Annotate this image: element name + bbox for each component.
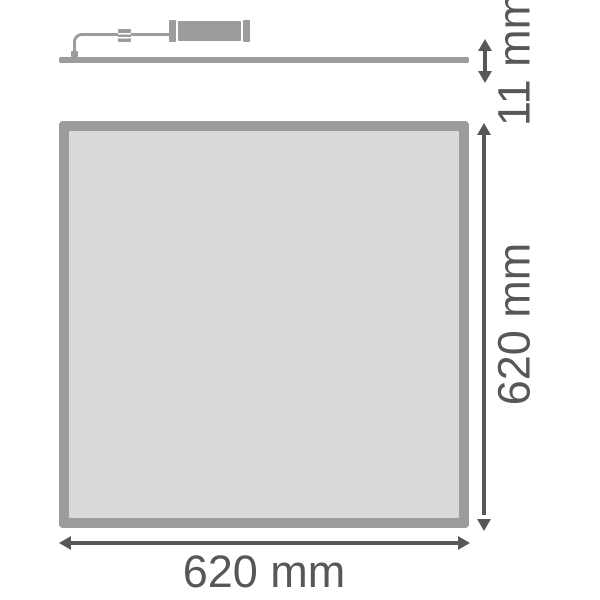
- panel-profile-bar: [59, 57, 469, 63]
- driver-lead-wire: [131, 33, 169, 36]
- driver-end-cap-left: [169, 20, 176, 42]
- dimension-line: [483, 49, 487, 73]
- driver-end-cap-right: [243, 20, 250, 42]
- height-label: 620 mm: [492, 243, 537, 406]
- dimension-line: [482, 133, 486, 515]
- width-label: 620 mm: [59, 549, 469, 594]
- dimension-line: [70, 541, 459, 545]
- power-cable: [73, 33, 118, 53]
- arrow-right-icon: [458, 536, 470, 550]
- dimension-drawing: 11 mm 620 mm 620 mm: [0, 0, 600, 600]
- cable-connector-icon: [118, 29, 131, 42]
- arrow-down-icon: [477, 519, 491, 531]
- panel-front-view: [59, 121, 469, 528]
- thickness-label: 11 mm: [492, 0, 537, 126]
- led-driver-box: [178, 21, 241, 41]
